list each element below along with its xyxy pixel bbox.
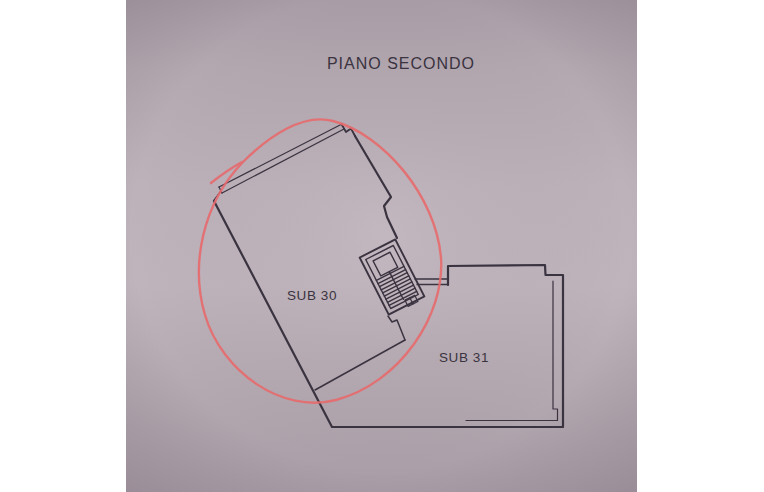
plan-title: PIANO SECONDO [327, 55, 475, 72]
sub31-label: SUB 31 [439, 350, 489, 365]
scanned-floor-plan-photo: PIANO SECONDO [0, 0, 764, 492]
screenshot-root: PIANO SECONDO [0, 0, 764, 492]
sub30-label: SUB 30 [287, 288, 337, 303]
